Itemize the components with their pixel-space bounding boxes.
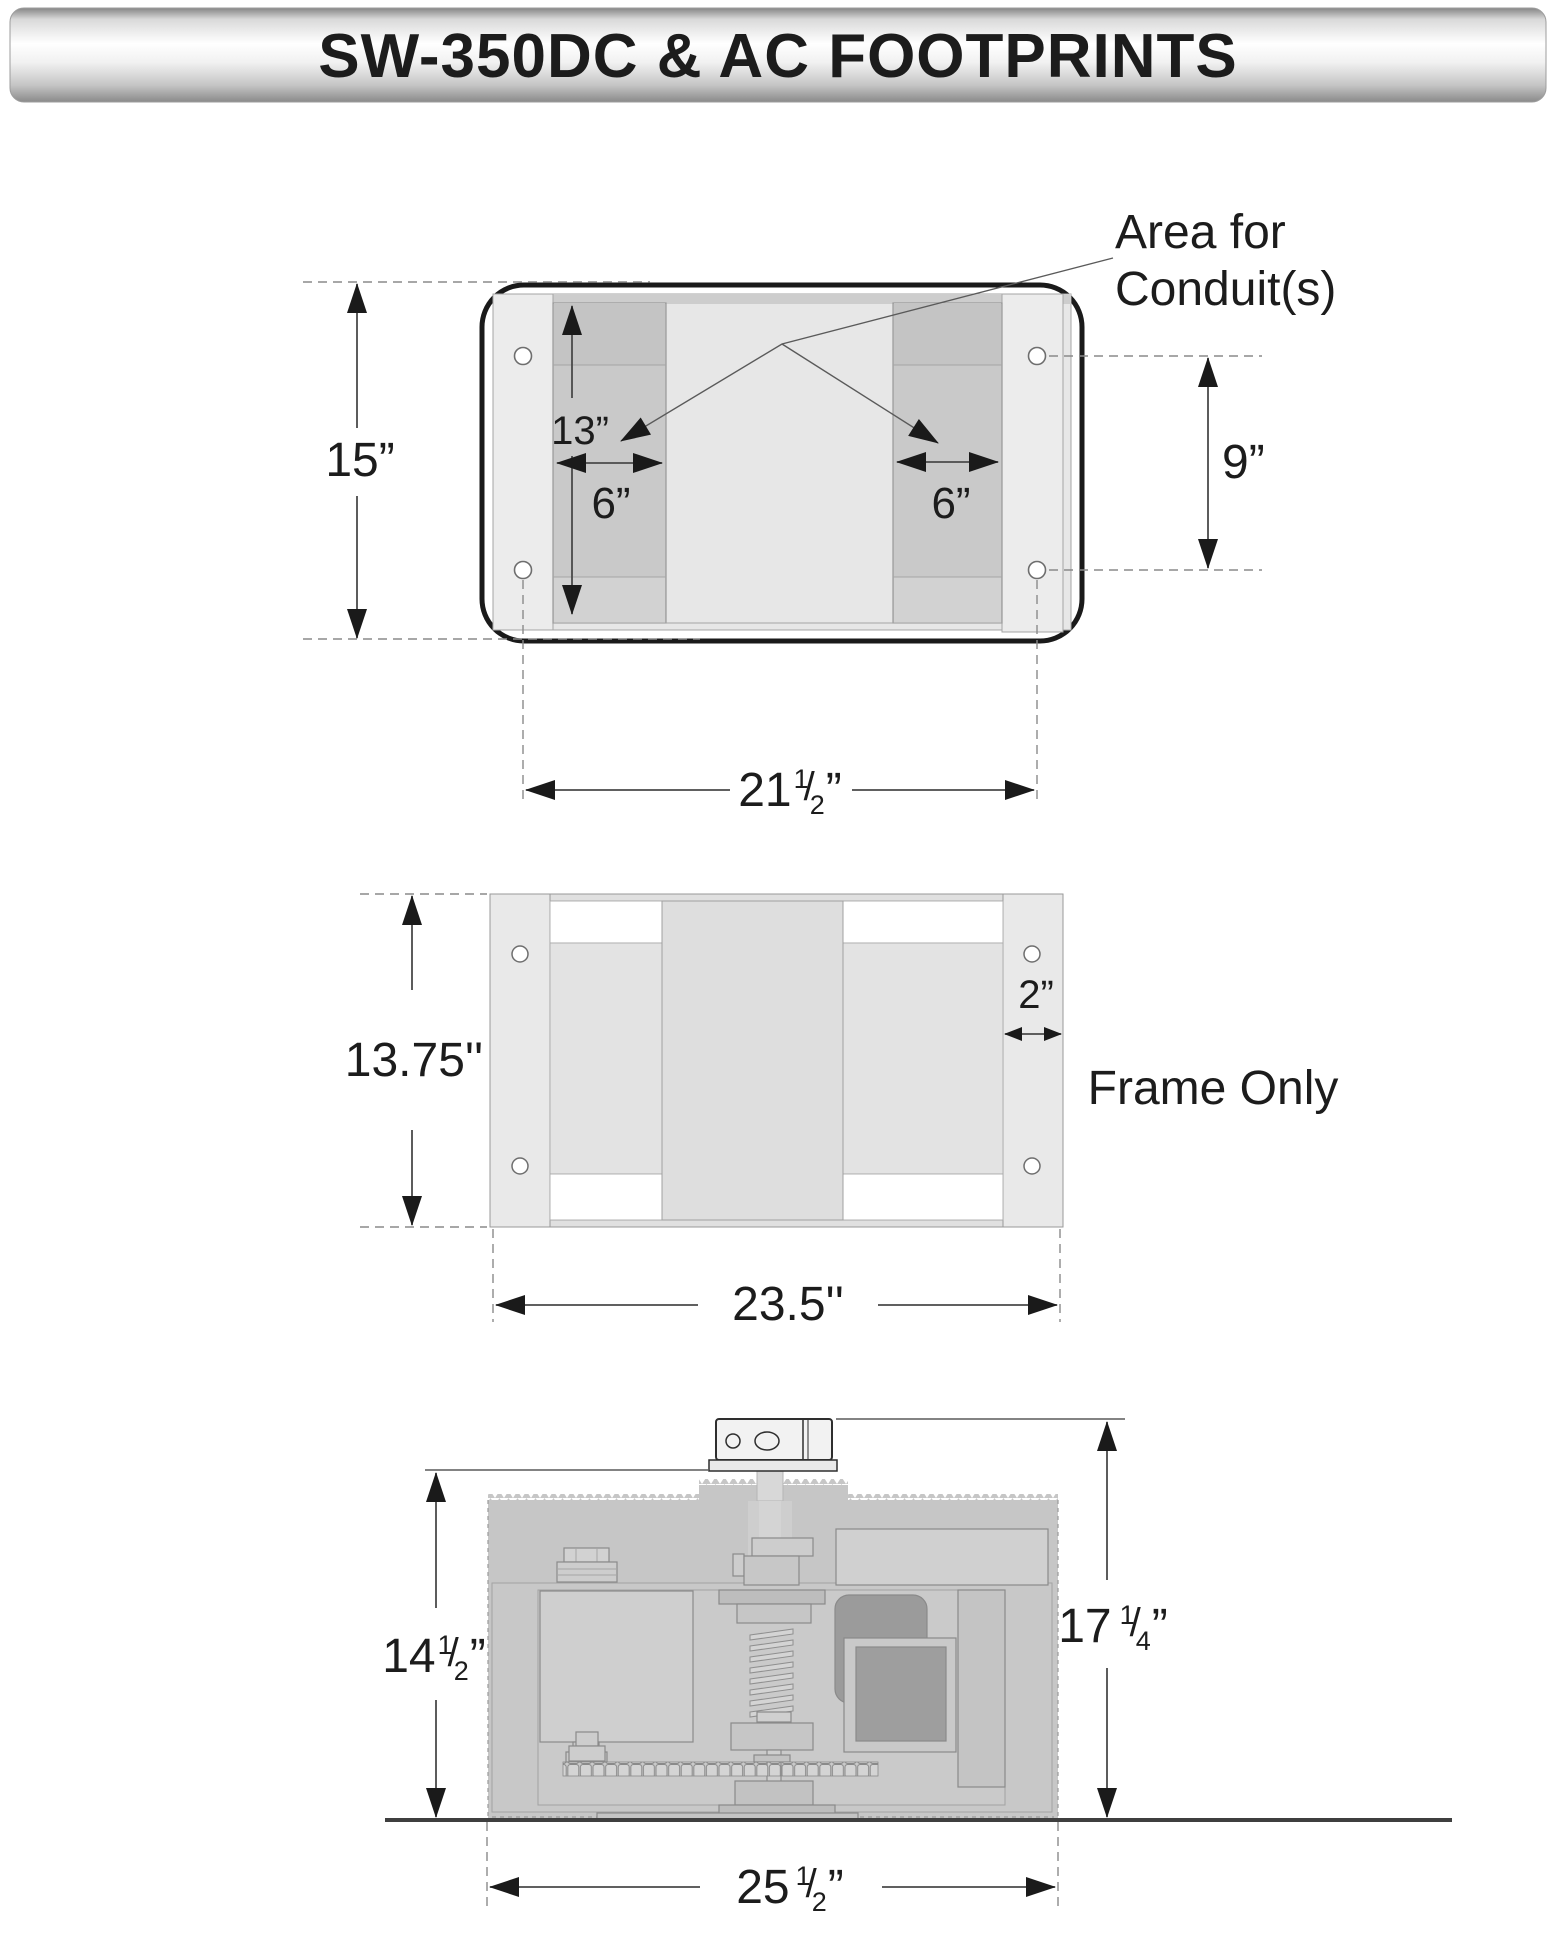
shaft-bearing-block [744, 1556, 799, 1585]
page-title: SW-350DC & AC FOOTPRINTS [318, 22, 1238, 91]
adjustment-bolt [557, 1548, 617, 1582]
dim-15-label: 15” [325, 434, 394, 487]
dim-21-5-label: 211/2” [738, 764, 842, 820]
title-bar: SW-350DC & AC FOOTPRINTS [10, 8, 1546, 102]
dim-17-25-label: 171/4” [1058, 1600, 1168, 1656]
spec-sheet-page: SW-350DC & AC FOOTPRINTS [0, 0, 1556, 1929]
dim-13-75-label: 13.75'' [345, 1034, 483, 1087]
frame-hole-top-right [1024, 946, 1040, 962]
rack-plate [754, 1755, 790, 1762]
frame-crossbar-right [843, 943, 1003, 1174]
frame-crossbar-left [550, 943, 662, 1174]
mount-plate-right [1002, 294, 1063, 632]
junction-box-body [716, 1419, 832, 1460]
lower-coupler-block [731, 1723, 813, 1750]
hole-top-left [515, 348, 532, 365]
dim-23-5-label: 23.5'' [732, 1278, 844, 1331]
bottom-gear-block [735, 1781, 813, 1805]
dim-9-label: 9” [1222, 436, 1265, 489]
gear-rack-chain [563, 1762, 878, 1776]
dim-25-5: 251/2” [487, 1822, 1058, 1917]
frame-hole-top-left [512, 946, 528, 962]
frame-view: 13.75'' 2” Frame Only 23.5'' [345, 894, 1339, 1331]
shaft-bearing-tab [733, 1554, 744, 1576]
dim-6-left-label: 6” [591, 479, 630, 528]
conduit-band-right [893, 303, 1002, 623]
dim-6-right-label: 6” [931, 479, 970, 528]
hole-top-right [1029, 348, 1046, 365]
conduit-annotation-line2: Conduit(s) [1115, 263, 1336, 316]
top-view: 15” 13” 6” 6” Area for Conduit(s) [303, 206, 1336, 820]
footprint-diagram: SW-350DC & AC FOOTPRINTS [0, 0, 1556, 1929]
frame-only-label: Frame Only [1088, 1062, 1339, 1115]
top-right-compartment [836, 1529, 1048, 1585]
frame-plate-right [1003, 894, 1063, 1227]
frame-center-column [662, 901, 843, 1220]
mount-plate-left [493, 294, 553, 630]
frame-hole-bottom-left [512, 1158, 528, 1174]
frame-top-rail [490, 894, 1063, 901]
dim-13-75: 13.75'' [345, 894, 487, 1227]
junction-box-plate [709, 1460, 837, 1471]
frame-plate-left [490, 894, 550, 1227]
rack-bracket-stem [576, 1732, 598, 1746]
motor-block [540, 1591, 693, 1742]
dim-23-5: 23.5'' [493, 1229, 1060, 1331]
frame-pocket-top-left [550, 901, 662, 943]
hole-bottom-left [515, 562, 532, 579]
worm-collar [737, 1604, 811, 1623]
frame-pocket-bottom-left [550, 1174, 662, 1220]
frame-hole-bottom-right [1024, 1158, 1040, 1174]
dim-13-label: 13” [551, 409, 609, 453]
rack-bracket [569, 1746, 605, 1761]
right-column [958, 1590, 1005, 1787]
side-view: 141/2” 171/4” 251/2” [382, 1419, 1452, 1917]
drive-shaft-top [757, 1471, 783, 1501]
hole-bottom-right [1029, 562, 1046, 579]
dim-25-5-label: 251/2” [736, 1861, 844, 1917]
dim-2-label: 2” [1018, 973, 1054, 1017]
dim-14-5-label: 141/2” [382, 1630, 486, 1686]
worm-end-cap [757, 1712, 791, 1722]
frame-pocket-top-right [843, 901, 1003, 943]
frame-pocket-bottom-right [843, 1174, 1003, 1220]
conduit-annotation-line1: Area for [1115, 206, 1286, 259]
control-housing-dark-panel [856, 1647, 946, 1741]
worm-flange [719, 1590, 825, 1604]
shaft-bearing-top [752, 1538, 813, 1556]
machine-internals [492, 1529, 1052, 1819]
frame-bottom-rail [490, 1220, 1063, 1227]
